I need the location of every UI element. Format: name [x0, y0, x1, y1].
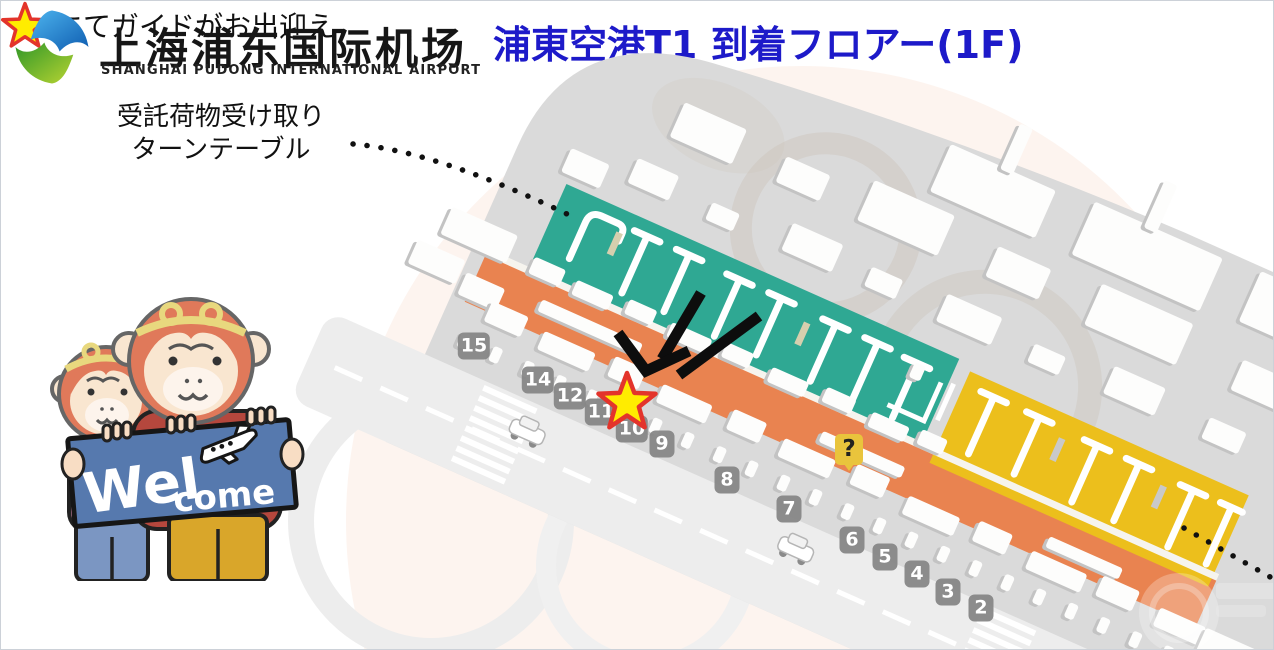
welcome-monkeys-illustration: Wel come	[21, 289, 313, 581]
gate-badge-8: 8	[715, 467, 740, 494]
gate-badge-3: 3	[936, 579, 961, 606]
gate-badge-6: 6	[840, 527, 865, 554]
gate-badge-15: 15	[458, 333, 490, 360]
airport-guide-slide: 上海浦东国际机场 SHANGHAI PUDONG INTERNATIONAL A…	[0, 0, 1274, 650]
information-badge: ?	[835, 434, 863, 465]
gate-badge-14: 14	[522, 367, 554, 394]
gate-badge-4: 4	[905, 561, 930, 588]
gate-badge-12: 12	[554, 383, 586, 410]
gate-badge-2: 2	[969, 595, 994, 622]
gate-badge-5: 5	[873, 544, 898, 571]
meeting-point-star-icon	[590, 365, 664, 441]
gate-badge-7: 7	[777, 496, 802, 523]
